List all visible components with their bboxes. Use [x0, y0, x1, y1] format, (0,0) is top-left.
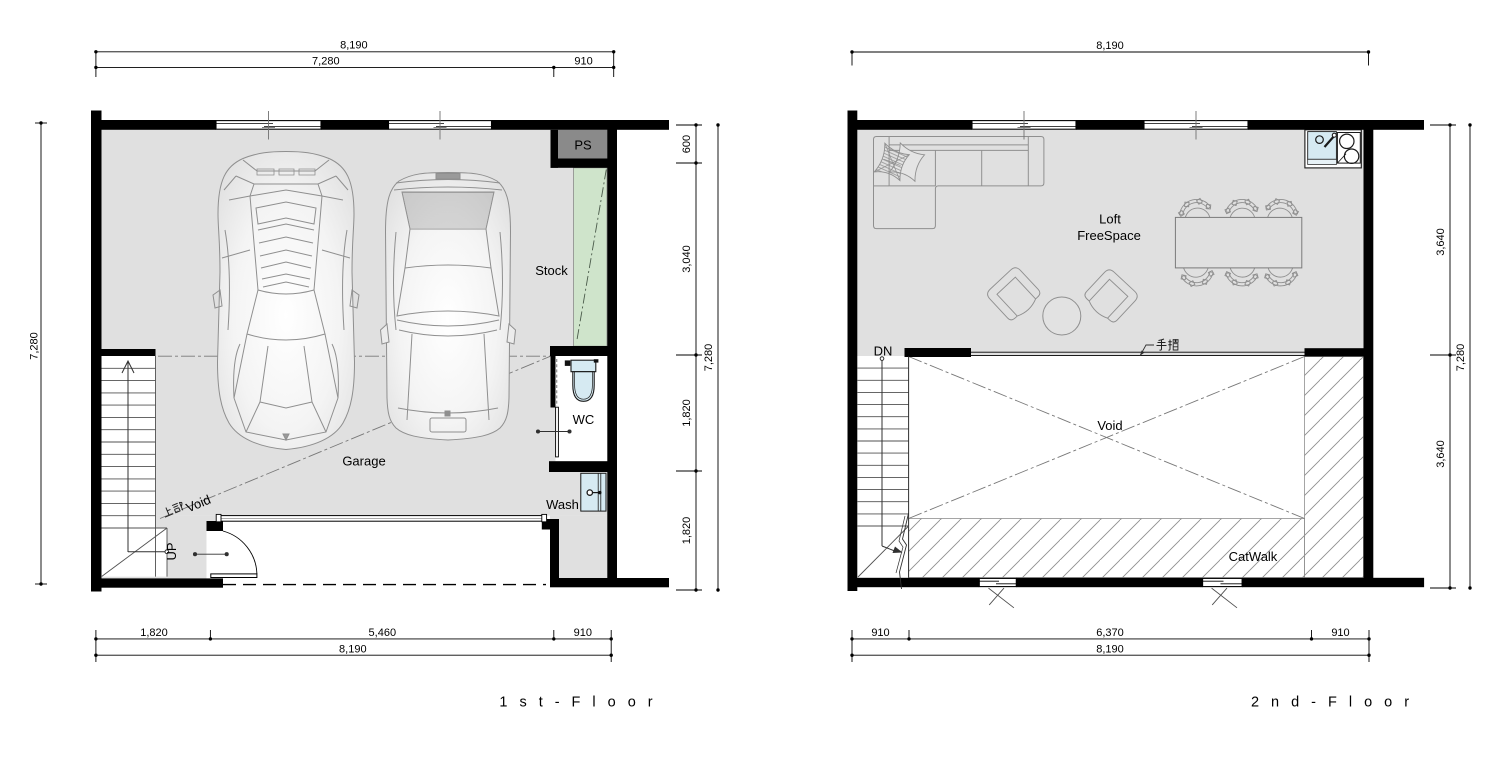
svg-text:FreeSpace: FreeSpace: [1077, 228, 1141, 243]
svg-text:1,820: 1,820: [140, 627, 168, 639]
svg-text:7,280: 7,280: [703, 344, 715, 372]
svg-text:Stock: Stock: [535, 263, 568, 278]
svg-text:Loft: Loft: [1099, 212, 1121, 227]
svg-text:8,190: 8,190: [340, 40, 368, 52]
svg-text:8,190: 8,190: [1096, 644, 1124, 656]
svg-text:8,190: 8,190: [1096, 40, 1124, 52]
svg-text:DN: DN: [874, 344, 893, 359]
svg-text:1,820: 1,820: [681, 399, 693, 427]
svg-text:3,040: 3,040: [681, 245, 693, 273]
svg-text:8,190: 8,190: [339, 644, 367, 656]
svg-text:6,370: 6,370: [1096, 627, 1124, 639]
svg-text:5,460: 5,460: [369, 627, 397, 639]
svg-text:7,280: 7,280: [29, 332, 41, 360]
svg-text:910: 910: [871, 627, 889, 639]
svg-text:910: 910: [574, 627, 592, 639]
svg-text:CatWalk: CatWalk: [1229, 549, 1278, 564]
svg-text:1,820: 1,820: [681, 517, 693, 545]
svg-text:UP: UP: [164, 542, 179, 560]
svg-text:WC: WC: [573, 412, 595, 427]
svg-text:2nd-Floor: 2nd-Floor: [1251, 695, 1421, 711]
svg-text:7,280: 7,280: [312, 55, 340, 67]
svg-text:7,280: 7,280: [1455, 344, 1467, 372]
svg-text:600: 600: [681, 135, 693, 153]
svg-text:1st-Floor: 1st-Floor: [499, 695, 664, 711]
svg-text:910: 910: [1331, 627, 1349, 639]
svg-text:PS: PS: [574, 138, 592, 153]
svg-text:Void: Void: [1097, 418, 1122, 433]
svg-text:3,640: 3,640: [1435, 440, 1447, 468]
svg-text:910: 910: [574, 55, 592, 67]
svg-text:Garage: Garage: [342, 454, 385, 469]
svg-text:3,640: 3,640: [1435, 228, 1447, 256]
svg-text:Wash: Wash: [546, 497, 579, 512]
